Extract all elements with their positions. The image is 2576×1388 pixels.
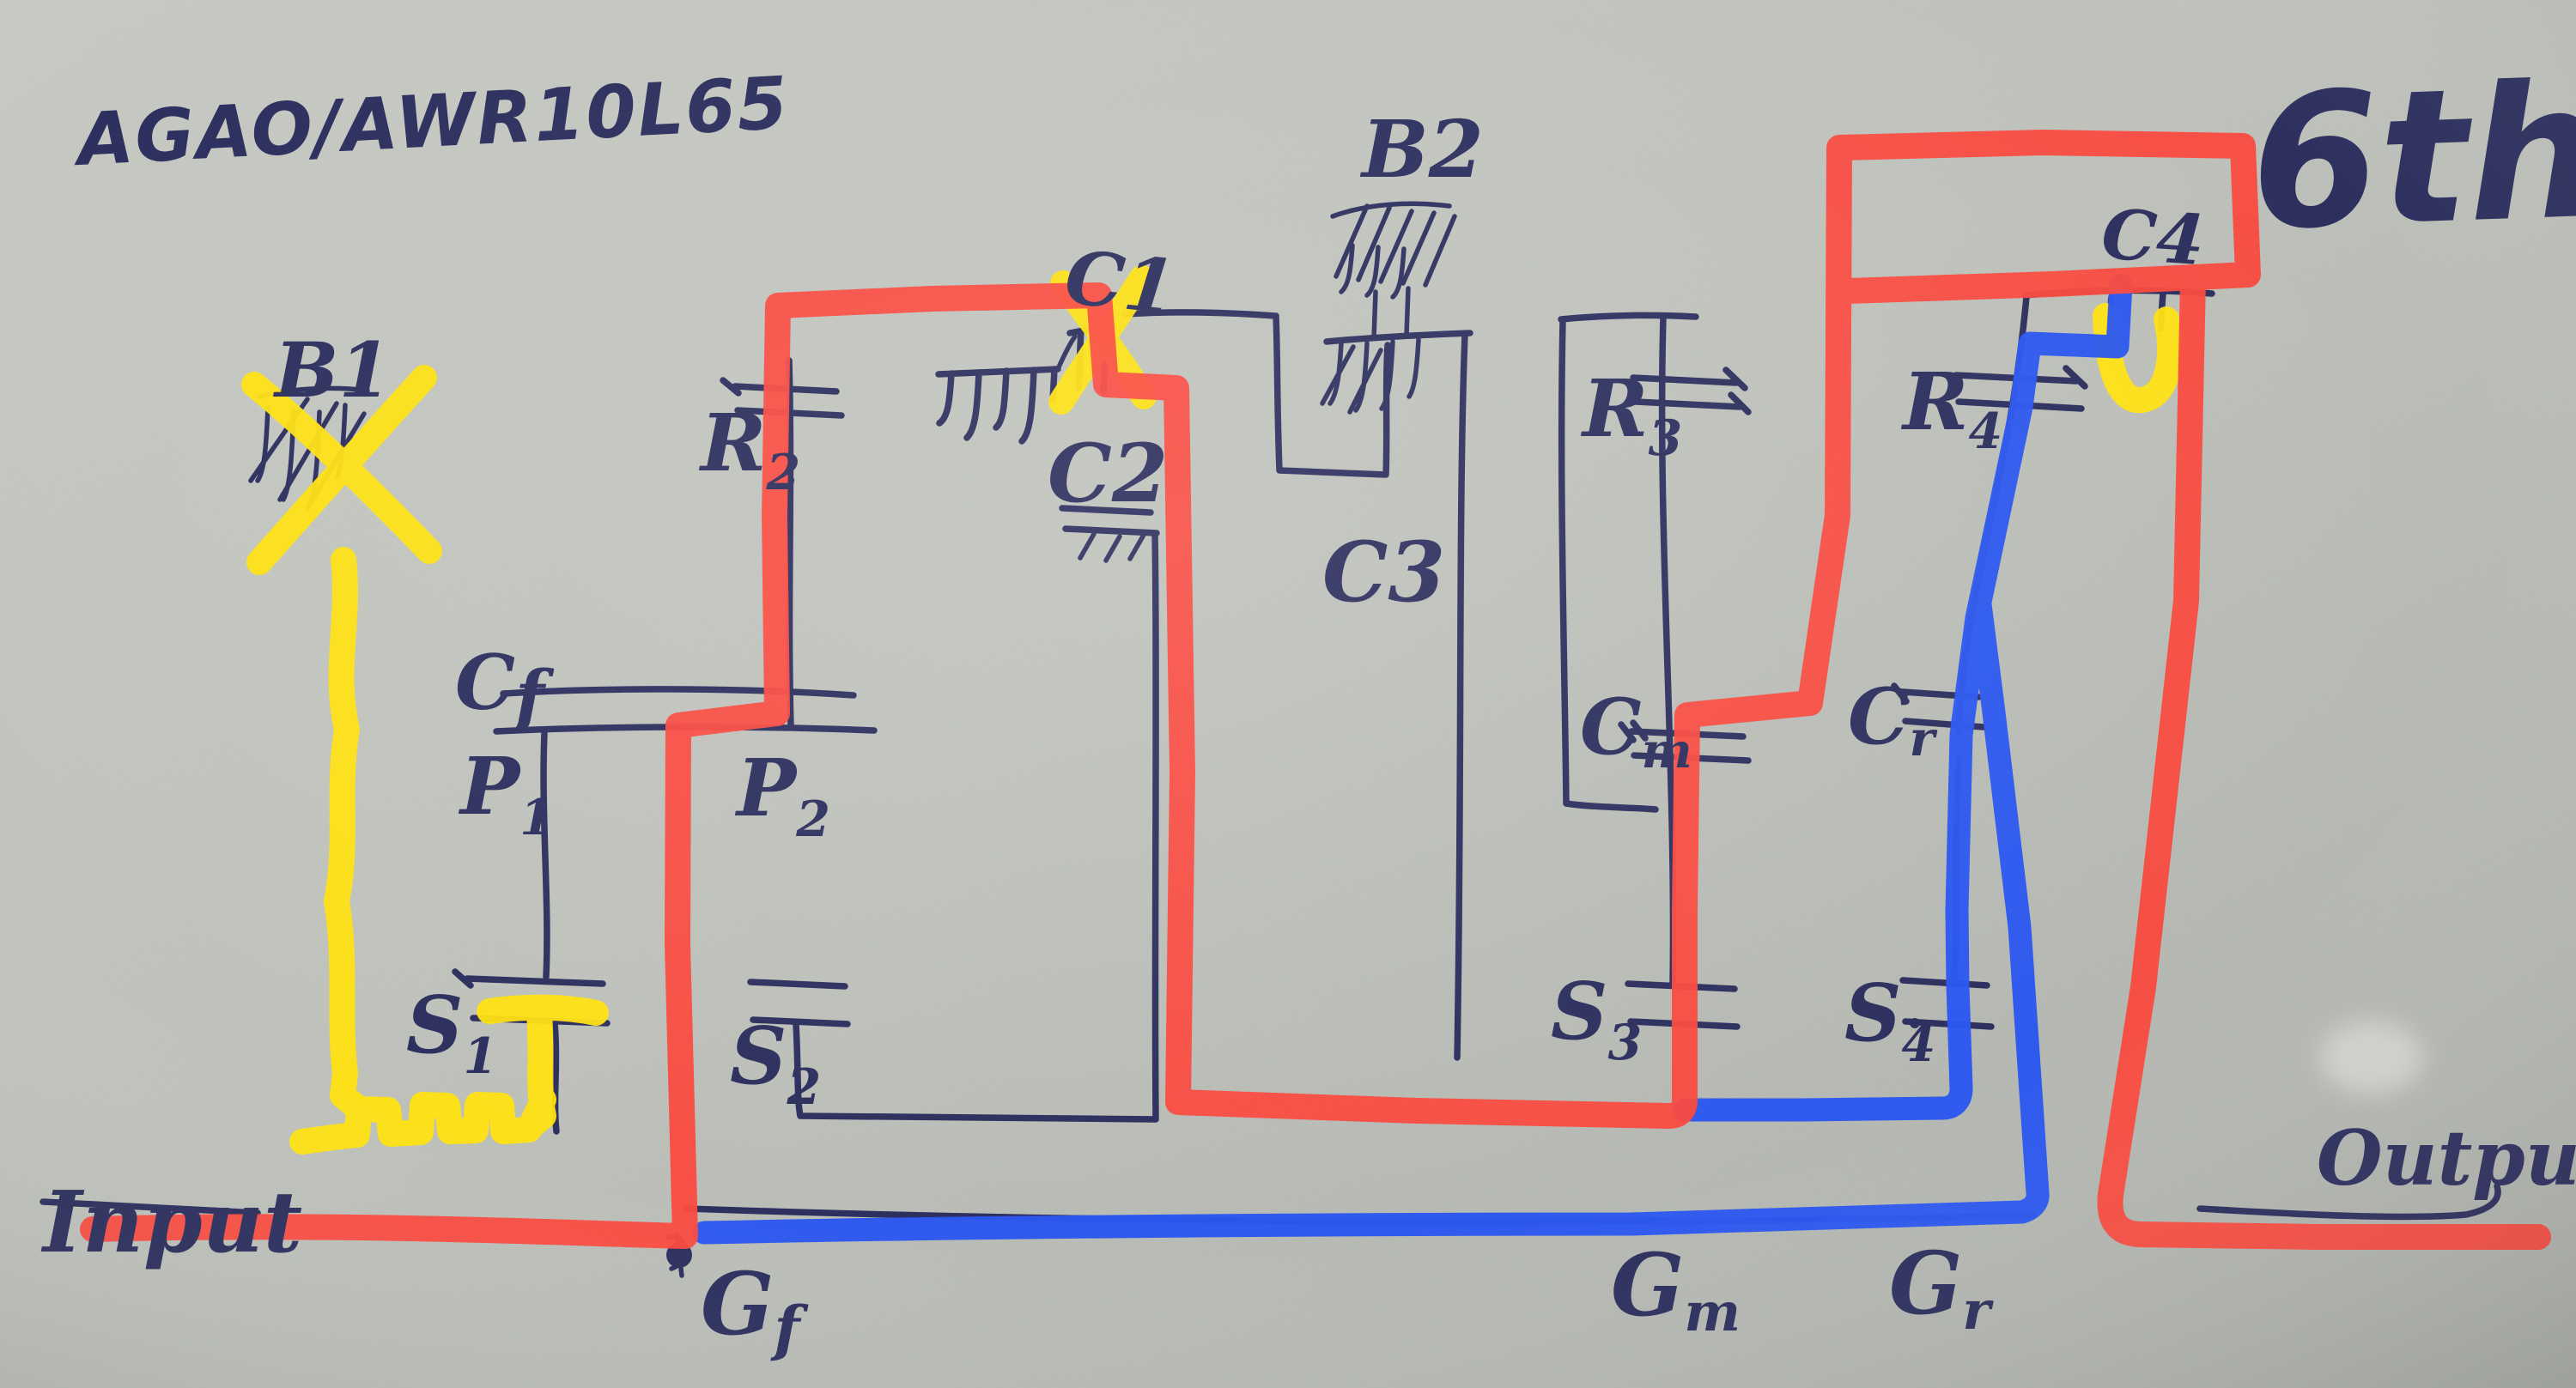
photo-vignette [0,0,2576,1388]
circuit-sketch-photo: AGAO/AWR10L65 6th Input Output B1 B2 C1 … [0,0,2576,1388]
